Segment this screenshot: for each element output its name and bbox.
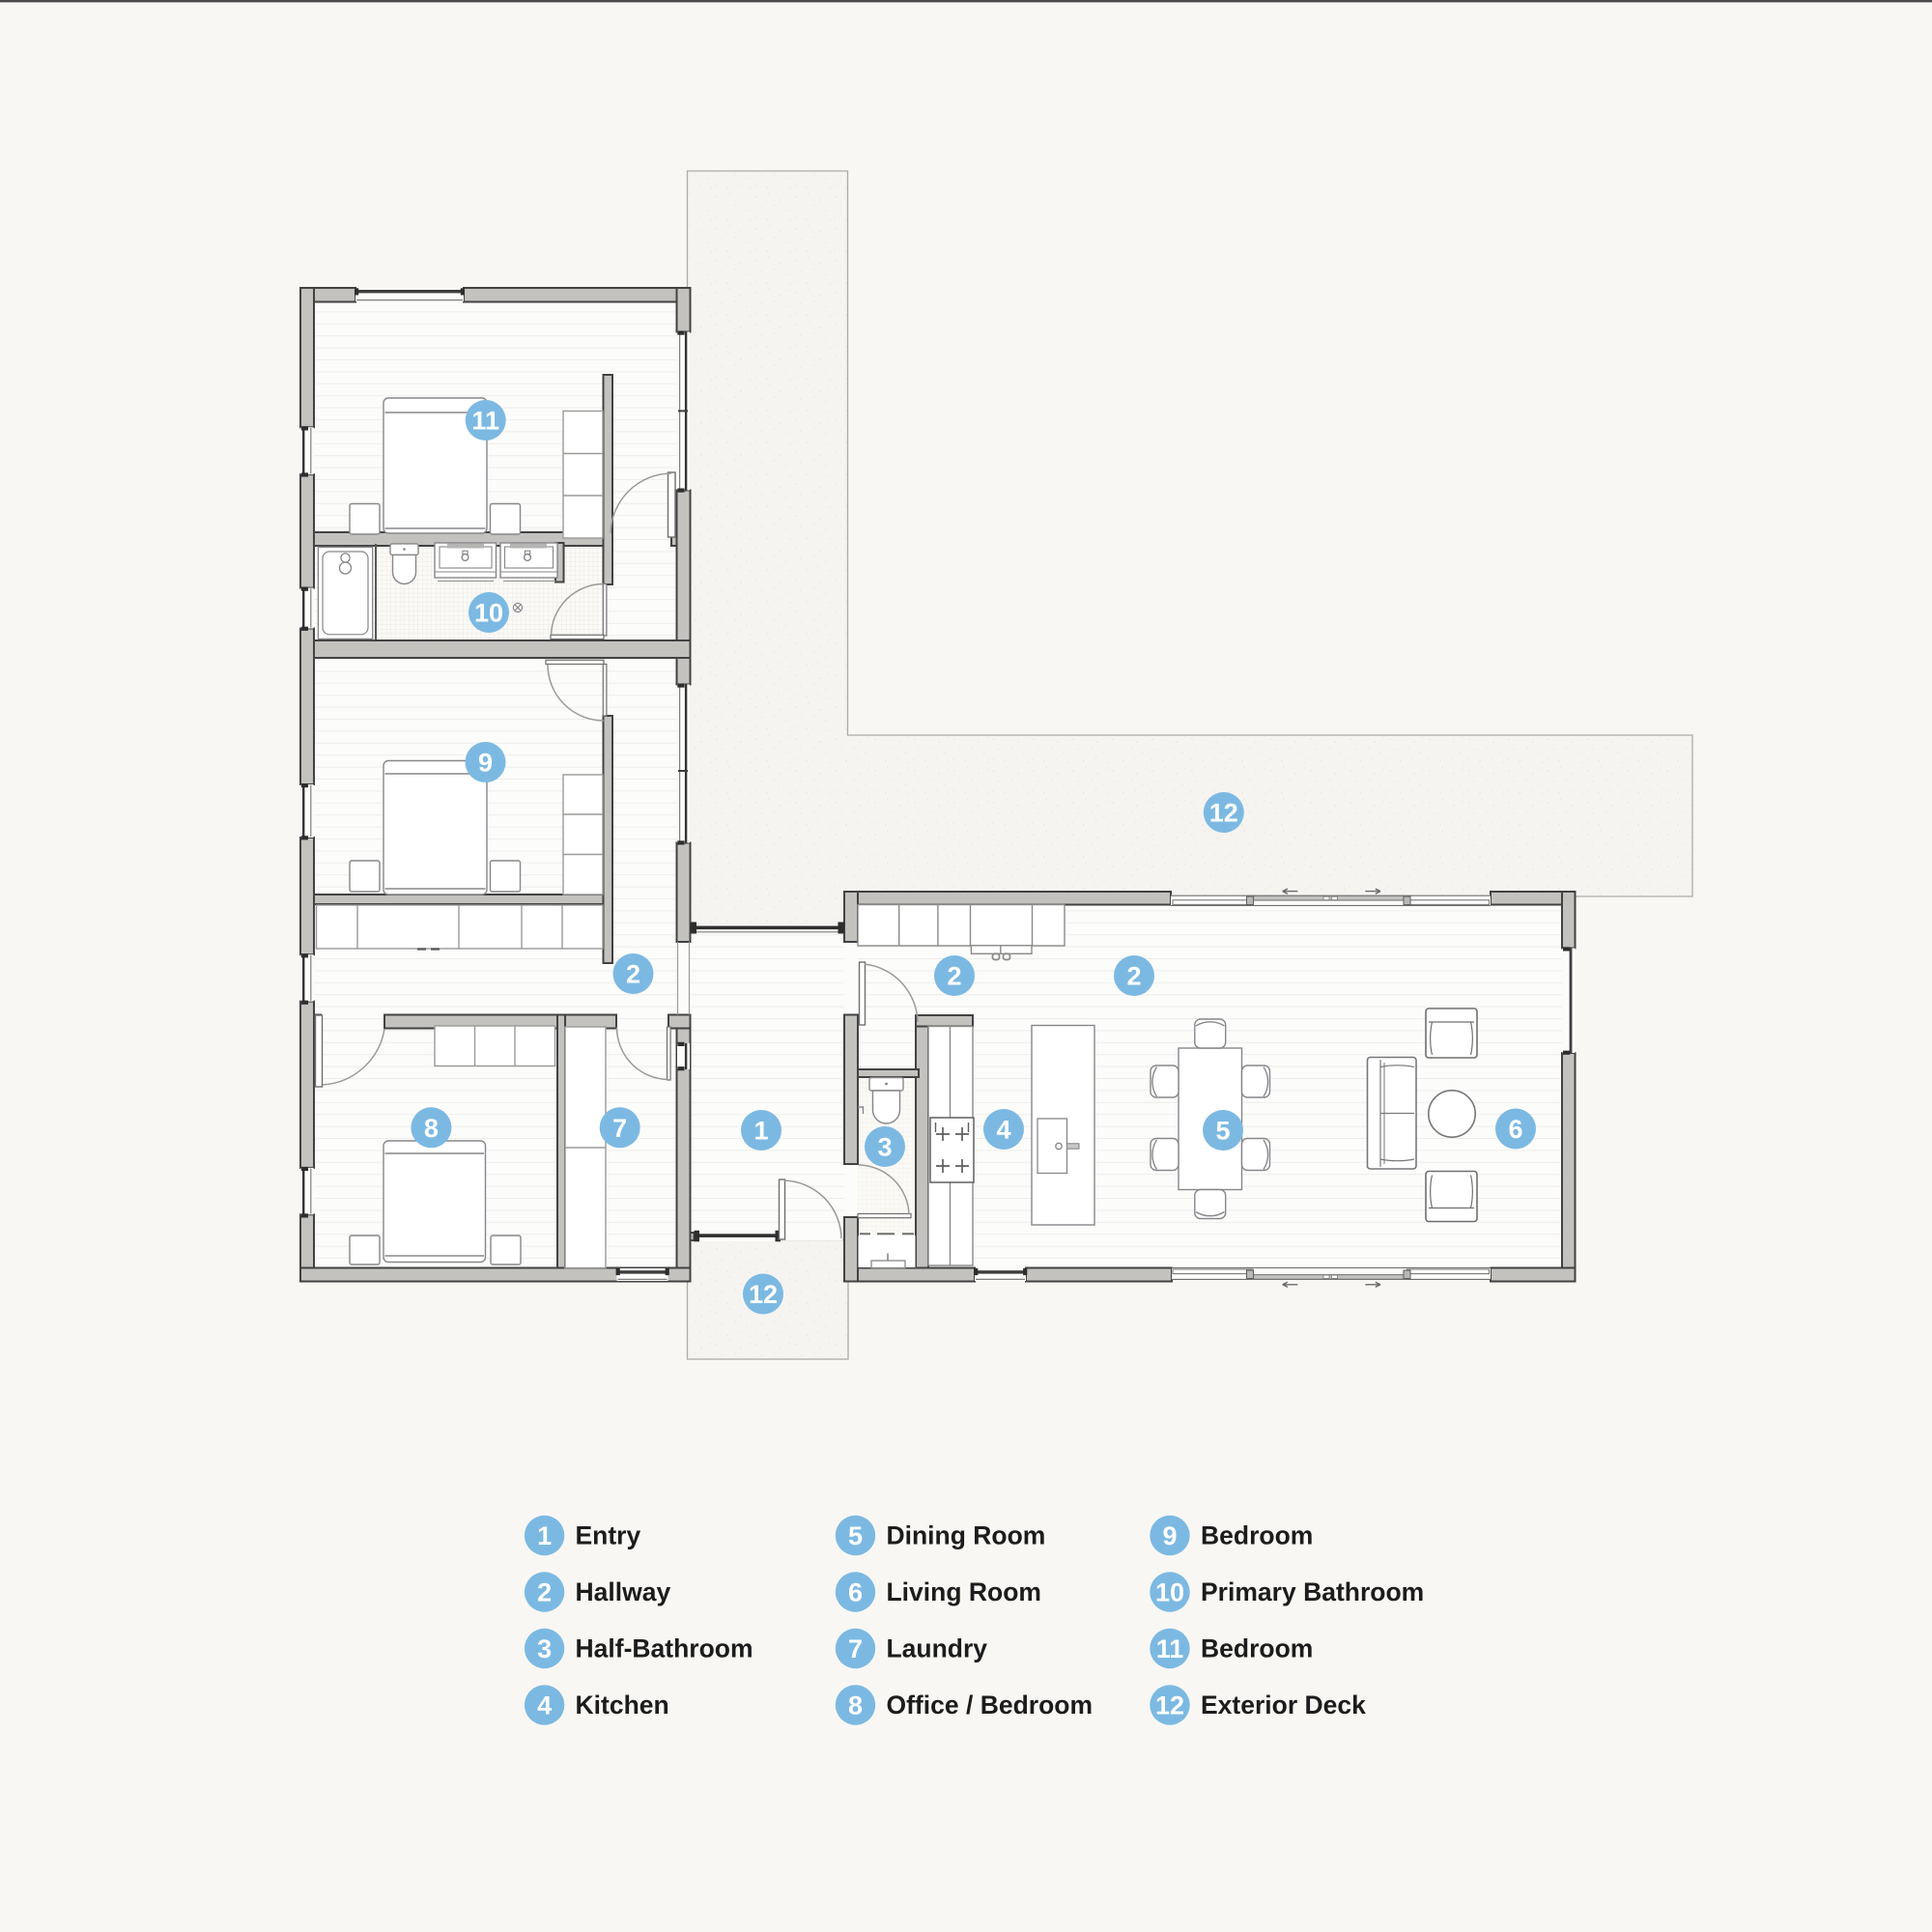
svg-text:Exterior Deck: Exterior Deck xyxy=(1201,1690,1366,1719)
svg-text:Bedroom: Bedroom xyxy=(1201,1521,1313,1550)
svg-text:3: 3 xyxy=(877,1133,892,1162)
svg-text:5: 5 xyxy=(1215,1117,1230,1146)
svg-text:10: 10 xyxy=(1155,1578,1184,1607)
svg-text:12: 12 xyxy=(1209,799,1238,828)
svg-text:9: 9 xyxy=(478,749,493,778)
svg-text:Bedroom: Bedroom xyxy=(1201,1634,1313,1663)
svg-text:2: 2 xyxy=(947,962,961,991)
svg-text:Dining Room: Dining Room xyxy=(887,1521,1046,1550)
svg-text:7: 7 xyxy=(848,1634,863,1663)
svg-text:7: 7 xyxy=(612,1114,627,1143)
svg-text:4: 4 xyxy=(537,1691,552,1720)
svg-text:Entry: Entry xyxy=(576,1521,641,1550)
svg-text:5: 5 xyxy=(848,1521,863,1550)
svg-text:1: 1 xyxy=(753,1117,768,1146)
svg-text:12: 12 xyxy=(749,1280,778,1309)
svg-text:6: 6 xyxy=(848,1578,863,1607)
svg-text:3: 3 xyxy=(537,1634,552,1663)
svg-text:Hallway: Hallway xyxy=(576,1577,671,1606)
svg-text:6: 6 xyxy=(1508,1115,1522,1144)
svg-text:8: 8 xyxy=(424,1114,439,1143)
svg-text:12: 12 xyxy=(1155,1691,1184,1720)
svg-text:4: 4 xyxy=(996,1116,1010,1145)
svg-text:2: 2 xyxy=(626,960,640,989)
svg-text:Laundry: Laundry xyxy=(887,1634,988,1663)
svg-text:Half-Bathroom: Half-Bathroom xyxy=(576,1634,753,1663)
svg-text:Kitchen: Kitchen xyxy=(576,1690,669,1719)
svg-text:Office / Bedroom: Office / Bedroom xyxy=(887,1690,1094,1719)
svg-text:Living Room: Living Room xyxy=(887,1577,1041,1606)
svg-text:2: 2 xyxy=(537,1578,552,1607)
svg-text:2: 2 xyxy=(1126,962,1141,991)
svg-text:8: 8 xyxy=(848,1691,863,1720)
svg-text:1: 1 xyxy=(537,1521,552,1550)
svg-text:9: 9 xyxy=(1162,1521,1177,1550)
svg-text:11: 11 xyxy=(1156,1634,1184,1663)
svg-text:10: 10 xyxy=(474,599,503,628)
svg-text:Primary Bathroom: Primary Bathroom xyxy=(1201,1577,1424,1606)
svg-text:11: 11 xyxy=(471,407,499,436)
